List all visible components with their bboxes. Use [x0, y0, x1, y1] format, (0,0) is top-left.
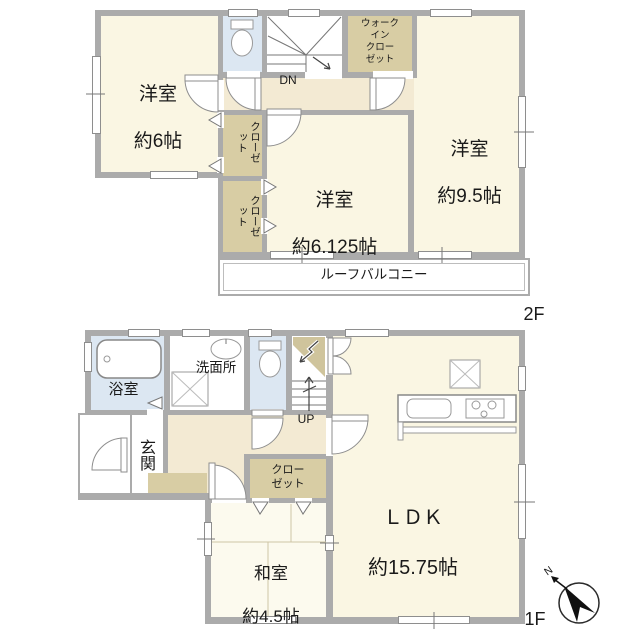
window [418, 251, 472, 259]
closet-a-label: クローゼット [225, 120, 261, 164]
room-name: 洋室 [407, 138, 532, 162]
floor-plan: 洋室 約6帖 洋室 約9.5帖 洋室 約6.125帖 ウォーク イン クロー ゼ… [0, 0, 640, 640]
japanese-room-label: 和室 約4.5帖 [212, 542, 330, 640]
walk-in-closet-label: ウォーク イン クロー ゼット [348, 18, 412, 66]
hall-2f [223, 78, 414, 110]
room-east-2f-label: 洋室 約9.5帖 [407, 114, 532, 233]
wall [163, 413, 168, 473]
stairs-up-label: UP [288, 412, 324, 427]
room-name: 和室 [212, 563, 330, 584]
room-size: 約4.5帖 [212, 606, 330, 627]
window [228, 9, 258, 17]
window [204, 522, 212, 556]
door-opening [227, 71, 260, 79]
door-opening [295, 498, 312, 503]
wall [286, 336, 292, 410]
stairwell-1f [292, 336, 326, 410]
window [518, 464, 526, 539]
floor1-label: 1F [515, 608, 555, 631]
stairwell-2f [267, 16, 342, 72]
door-opening [147, 409, 163, 416]
stairs-down-label: DN [268, 73, 308, 88]
toilet-room-2f [223, 16, 262, 72]
door-opening [326, 338, 333, 375]
entrance-porch [78, 413, 132, 497]
compass-north-label: N [539, 562, 560, 582]
window [398, 616, 470, 624]
door-opening [267, 110, 301, 115]
wall [164, 336, 170, 410]
bathroom-label: 浴室 [91, 381, 156, 400]
door-opening [373, 71, 413, 79]
window [84, 342, 92, 372]
window [128, 329, 160, 337]
window [345, 329, 389, 337]
window [430, 9, 472, 17]
door-opening [326, 418, 333, 456]
door-opening [252, 498, 269, 503]
room-name: 洋室 [99, 83, 217, 107]
door-opening [252, 409, 283, 416]
wall [205, 498, 211, 623]
room-size: 約9.5帖 [407, 185, 532, 209]
room-name: ＬＤＫ [348, 506, 478, 531]
door-opening [217, 80, 224, 110]
roof-balcony-label: ルーフバルコニー [218, 267, 530, 284]
room-size: 約15.75帖 [348, 556, 478, 581]
closet-b-label: クローゼット [225, 194, 261, 238]
wall [78, 493, 210, 500]
wall [244, 454, 330, 459]
room-center-2f-label: 洋室 約6.125帖 [262, 165, 407, 284]
room-west-2f-label: 洋室 約6帖 [99, 59, 217, 178]
entrance-label: 玄関 [135, 430, 157, 480]
window [248, 329, 272, 337]
floor2-label: 2F [512, 303, 556, 326]
wall [262, 10, 267, 78]
toilet-room-1f [250, 336, 286, 410]
wall [218, 10, 223, 258]
room-name: 洋室 [262, 189, 407, 213]
wall [223, 176, 262, 181]
washroom-label: 洗面所 [186, 360, 246, 377]
door-opening [305, 71, 342, 79]
window [518, 366, 526, 391]
room-size: 約6帖 [99, 130, 217, 154]
door-opening [212, 498, 246, 503]
compass-icon [551, 576, 599, 623]
window [288, 9, 320, 17]
window [182, 329, 210, 337]
wall [218, 110, 414, 115]
door-opening [217, 157, 224, 173]
wall [244, 454, 250, 498]
closet-1f-label: クロー ゼット [252, 463, 324, 491]
wall [412, 10, 417, 78]
ldk-label: ＬＤＫ 約15.75帖 [348, 481, 478, 606]
door-opening [217, 112, 224, 128]
room-size: 約6.125帖 [262, 236, 407, 260]
